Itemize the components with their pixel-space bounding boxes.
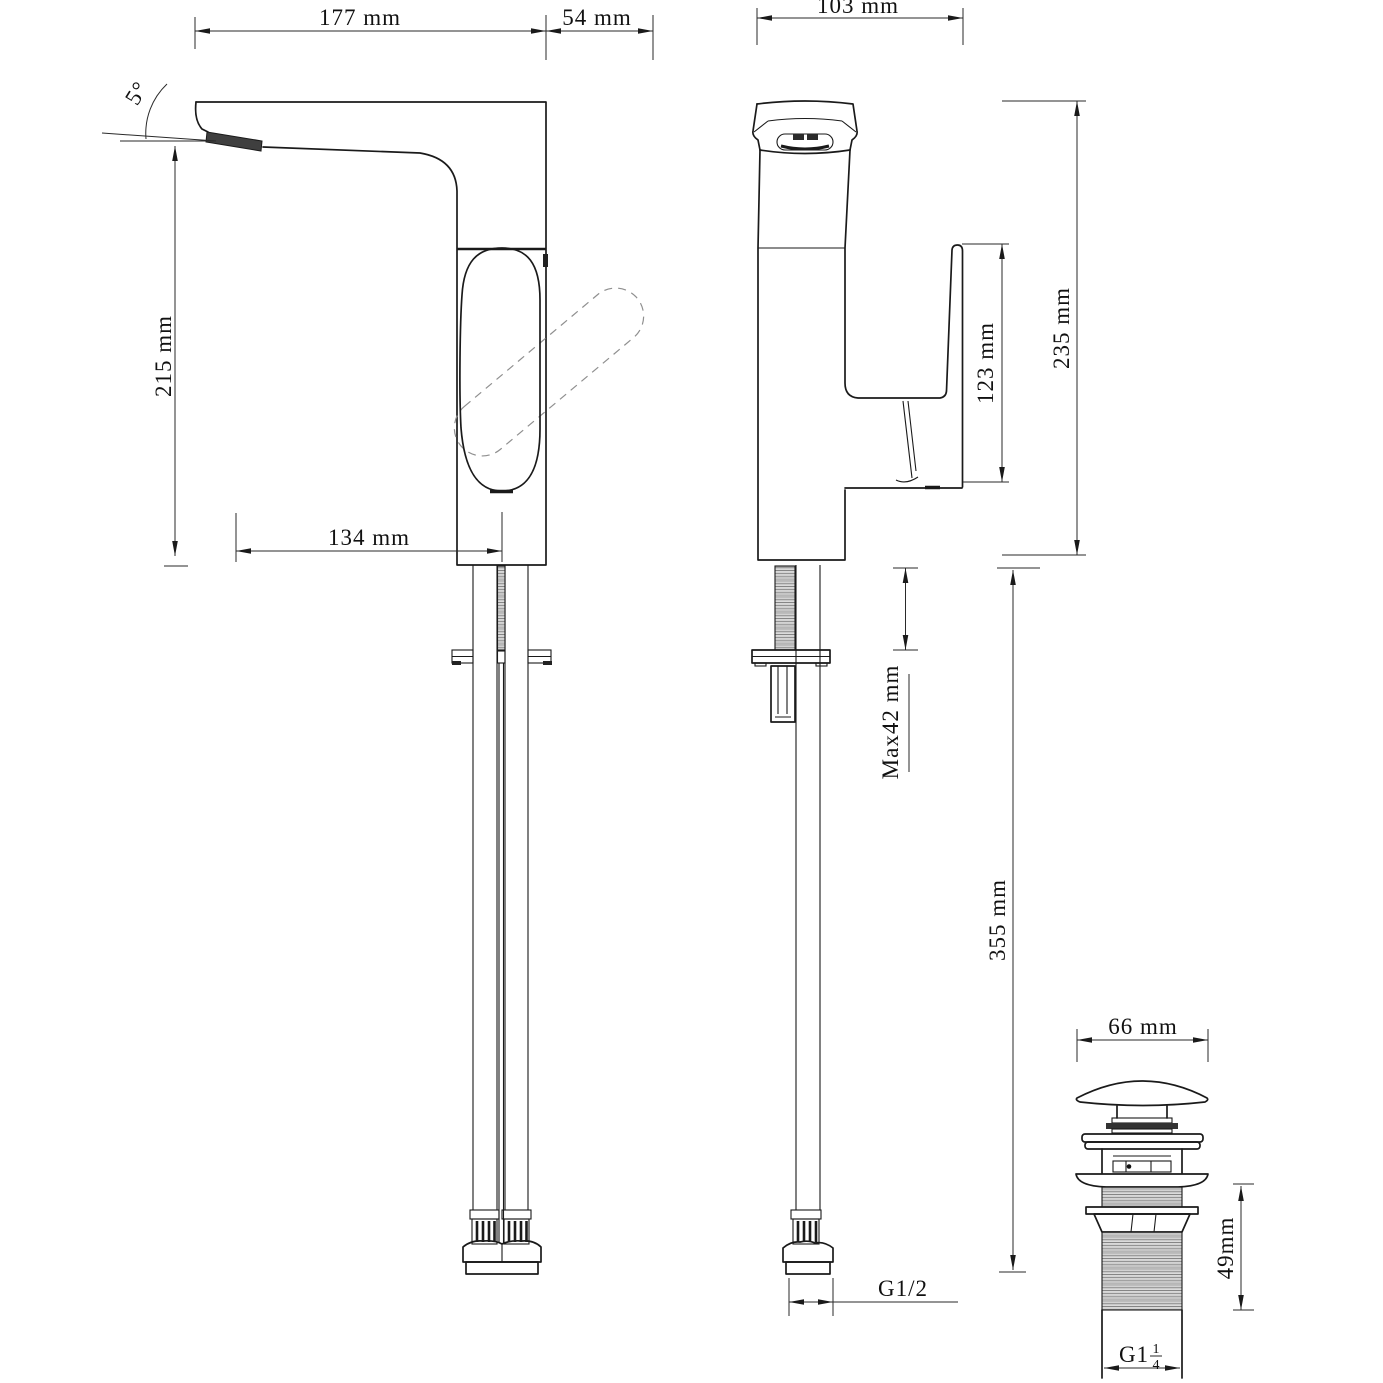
dim-handle-overhang-54: 54 mm xyxy=(546,5,653,60)
seam-tick xyxy=(543,254,548,267)
drain-view: 66 mm 49mm G1 1 4 xyxy=(1076,1014,1254,1378)
dim-label-g12: G1/2 xyxy=(878,1276,928,1301)
dim-inlet-thread-g12: G1/2 xyxy=(789,1276,958,1316)
dim-label-66: 66 mm xyxy=(1108,1014,1178,1039)
hose-connectors-side xyxy=(463,1210,541,1274)
mounting-stud-side xyxy=(498,566,506,650)
front-view: 103 mm 123 mm 235 mm Max42 mm 355 mm xyxy=(752,0,1086,1316)
dim-label-5deg: 5° xyxy=(120,77,153,110)
dim-label-g1-frac-den: 4 xyxy=(1153,1358,1160,1373)
dim-spout-reach-134: 134 mm xyxy=(236,512,502,562)
dim-overall-width-103: 103 mm xyxy=(757,0,963,45)
dim-label-134: 134 mm xyxy=(328,525,410,550)
mounting-front xyxy=(752,565,830,1210)
dim-spout-angle-5deg: 5° xyxy=(102,77,216,141)
dim-total-height-235: 235 mm xyxy=(1002,101,1086,555)
dim-label-215: 215 mm xyxy=(151,315,176,397)
dim-thread-length-49: 49mm xyxy=(1213,1184,1254,1310)
dim-label-54: 54 mm xyxy=(562,5,632,30)
body-front xyxy=(758,150,963,560)
spout-head-front xyxy=(753,101,857,154)
pull-rod-side xyxy=(499,663,504,1243)
clamp-bracket-front xyxy=(771,666,795,722)
spout-and-body-side xyxy=(196,102,548,565)
technical-drawing-canvas: 177 mm 54 mm 5° 215 mm 134 mm xyxy=(0,0,1383,1383)
dim-outlet-thread-g114: G1 1 4 xyxy=(1104,1342,1180,1373)
handle-stem-front xyxy=(896,401,918,482)
dim-label-235: 235 mm xyxy=(1049,287,1074,369)
dim-cap-diameter-66: 66 mm xyxy=(1077,1014,1208,1062)
threaded-shank-front xyxy=(775,566,795,650)
drain-threaded-pipe xyxy=(1102,1232,1182,1310)
drain-washer xyxy=(1086,1207,1198,1214)
dim-label-177: 177 mm xyxy=(319,5,401,30)
dim-hose-length-355: 355 mm xyxy=(985,568,1040,1272)
dim-label-123: 123 mm xyxy=(973,322,998,404)
drain-cap xyxy=(1076,1081,1207,1106)
drain-locknut xyxy=(1094,1214,1190,1232)
hose-connector-front xyxy=(783,1210,833,1274)
dim-spout-height-215: 215 mm xyxy=(151,146,188,566)
dim-label-103: 103 mm xyxy=(817,0,899,18)
dim-label-g1: G1 xyxy=(1119,1342,1149,1367)
dim-handle-height-123: 123 mm xyxy=(962,244,1009,482)
handle-rotated-dashed xyxy=(443,277,655,468)
drain-bowl-flange xyxy=(1076,1174,1208,1187)
popup-drain-waste xyxy=(1076,1081,1208,1378)
supply-hose-front xyxy=(796,565,820,1210)
dim-max-deck-42: Max42 mm xyxy=(878,568,918,779)
supply-hoses-side xyxy=(452,565,552,1274)
dim-label-49: 49mm xyxy=(1213,1217,1238,1280)
side-view: 177 mm 54 mm 5° 215 mm 134 mm xyxy=(102,5,655,1274)
dim-label-g1-frac-num: 1 xyxy=(1153,1342,1160,1357)
drain-top-flange xyxy=(1082,1134,1203,1142)
spout-aerator-side xyxy=(206,132,262,151)
handle-side xyxy=(460,248,540,492)
faucet-technical-drawing-page: 177 mm 54 mm 5° 215 mm 134 mm xyxy=(0,0,1383,1383)
dim-label-355: 355 mm xyxy=(985,879,1010,961)
dim-label-max42: Max42 mm xyxy=(878,665,903,780)
dim-top-width-177: 177 mm xyxy=(195,5,546,60)
